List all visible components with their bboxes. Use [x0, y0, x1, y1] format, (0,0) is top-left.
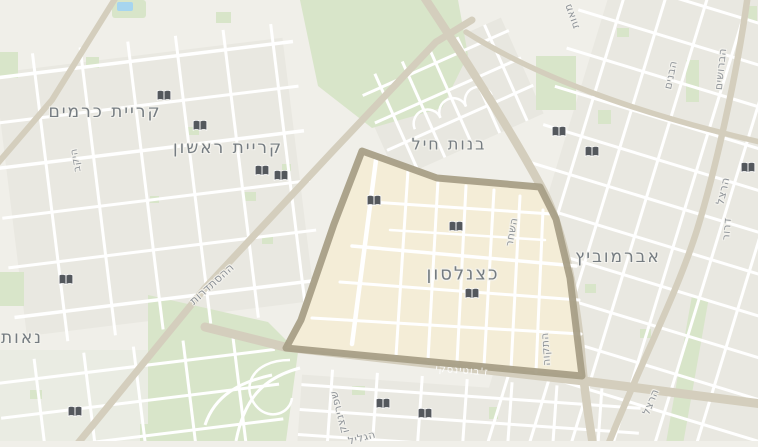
pond-water	[117, 2, 133, 11]
school-icon[interactable]	[255, 162, 270, 181]
map-viewport[interactable]: { "map": { "description_label": "map-of-…	[0, 0, 758, 441]
kiryat-kramim-label[interactable]: קריית כרמים	[48, 102, 161, 122]
katznelson-label[interactable]: כצנלסון	[426, 264, 499, 285]
abramovich-label[interactable]: אברמוביץ	[575, 247, 661, 267]
kiryat-rishon-label[interactable]: קריית ראשון	[173, 138, 283, 158]
hatikva-label[interactable]: התקוה	[539, 332, 553, 366]
school-icon[interactable]	[157, 87, 172, 106]
banot-hayil-label[interactable]: בנות חיל	[412, 135, 487, 154]
school-icon[interactable]	[68, 403, 83, 422]
school-icon[interactable]	[552, 123, 567, 142]
school-icon[interactable]	[741, 159, 756, 178]
school-icon[interactable]	[449, 218, 464, 237]
school-icon[interactable]	[465, 285, 480, 304]
school-icon[interactable]	[193, 117, 208, 136]
map-canvas[interactable]	[0, 0, 758, 441]
dror-label[interactable]: דרור	[720, 217, 734, 240]
school-icon[interactable]	[376, 395, 391, 414]
school-icon[interactable]	[418, 405, 433, 424]
school-icon[interactable]	[59, 271, 74, 290]
school-icon[interactable]	[274, 167, 289, 186]
school-icon[interactable]	[367, 192, 382, 211]
school-icon[interactable]	[585, 143, 600, 162]
neot-partial-label[interactable]: נאות	[1, 328, 43, 348]
